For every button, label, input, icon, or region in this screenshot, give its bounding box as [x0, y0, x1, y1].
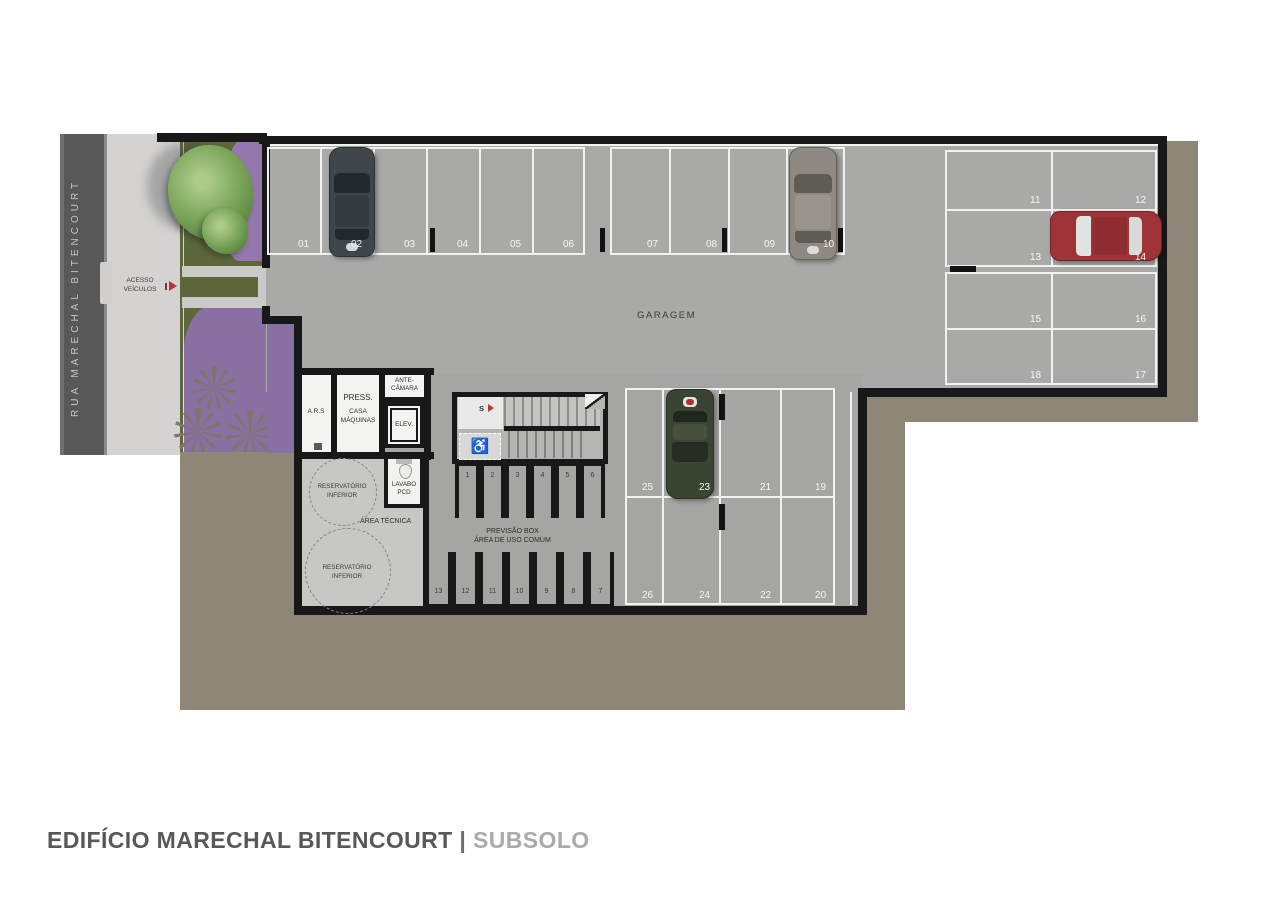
inner-top-white-line [266, 144, 1160, 146]
box-number: 4 [530, 472, 555, 479]
car-roof [1093, 217, 1127, 255]
stair-corner-diagonal [585, 394, 605, 409]
car-windshield [334, 173, 370, 193]
storage-box [452, 552, 479, 608]
space-number: 24 [699, 591, 710, 601]
space-divider [728, 147, 730, 255]
page-title: EDIFÍCIO MARECHAL BITENCOURT | SUBSOLO [47, 827, 590, 854]
box-number: 13 [425, 588, 452, 595]
reservoir-label-2: RESERVATÓRIO INFERIOR [306, 564, 388, 581]
space-divider [479, 147, 481, 255]
space-number: 12 [1135, 196, 1146, 206]
access-arrow-icon [169, 281, 177, 291]
space-number: 11 [1030, 196, 1040, 206]
storage-box [560, 552, 587, 608]
wall-right-block-bottom [858, 388, 1167, 397]
space-number: 01 [298, 240, 309, 250]
space-divider [426, 147, 428, 255]
room-lavabo-label2: PCD [384, 489, 424, 496]
car-license-plate [807, 246, 819, 254]
space-number: 09 [764, 240, 775, 250]
box-number: 3 [505, 472, 530, 479]
space-number: 04 [457, 240, 468, 250]
stairs-label: S [479, 404, 484, 413]
space-number: 13 [1030, 253, 1041, 263]
garage-label: GARAGEM [637, 310, 696, 321]
space-divider [945, 328, 1157, 330]
space-number: 06 [563, 240, 574, 250]
access-label-line2: VEÍCULOS [124, 286, 157, 293]
boxes-title-line1: PREVISÃO BOX [486, 528, 539, 535]
box-number: 1 [455, 472, 480, 479]
wall-rooms-top [294, 368, 434, 375]
car-roof [673, 424, 707, 440]
wall-mid-vertical [858, 388, 867, 615]
space-number: 03 [404, 240, 415, 250]
space-number: 08 [706, 240, 717, 250]
aisle-white-line [850, 392, 852, 605]
palm-tree-2 [174, 408, 222, 456]
car-rear-window [1129, 217, 1142, 255]
wall-top [157, 133, 267, 142]
room-lavabo-label1: LAVABO [384, 481, 424, 488]
boxes-title-line2: ÁREA DE USO COMUM [474, 537, 551, 544]
car-roof [335, 195, 369, 227]
column-tick [719, 394, 725, 420]
space-number: 16 [1135, 315, 1146, 325]
space-number: 02 [351, 240, 362, 250]
space-number: 20 [815, 591, 826, 601]
car-roof [795, 195, 831, 229]
box-number: 5 [555, 472, 580, 479]
space-number: 26 [642, 591, 653, 601]
boxes-area-label: PREVISÃO BOX ÁREA DE USO COMUM [450, 527, 575, 545]
space-divider [320, 147, 322, 255]
box-number: 7 [587, 588, 614, 595]
space-number: 18 [1030, 371, 1041, 381]
space-number: 19 [815, 483, 826, 493]
room-press-label1: PRESS. [337, 393, 379, 402]
room-ars-label: A.R.S [299, 408, 333, 415]
storage-box [580, 462, 605, 518]
car-rear-window [673, 411, 707, 422]
storage-box [455, 462, 480, 518]
elevator-label: ELEV. [384, 421, 424, 428]
column-tick [719, 504, 725, 530]
street-name-label: RUA MARECHAL BITENCOURT [70, 148, 96, 448]
space-divider [532, 147, 534, 255]
storage-box [555, 462, 580, 518]
space-number: 17 [1135, 371, 1146, 381]
car-plate-emblem [686, 399, 694, 405]
storage-box [530, 462, 555, 518]
storage-box [480, 462, 505, 518]
box-number: 6 [580, 472, 605, 479]
wall-right [1158, 136, 1167, 396]
reservoir-label-1: RESERVATÓRIO INFERIOR [303, 483, 381, 500]
title-floor: SUBSOLO [473, 827, 590, 853]
space-number: 25 [642, 483, 653, 493]
stairs-direction-arrow-icon [488, 404, 494, 412]
wall-rooms-right [424, 368, 431, 460]
title-pipe: | [459, 827, 466, 853]
column-tick [600, 228, 605, 252]
space-number: 10 [823, 240, 834, 250]
space-divider [625, 496, 835, 498]
car-windshield [794, 174, 832, 193]
room-press-label2: CASA [337, 408, 379, 415]
reservoir-2-line2: INFERIOR [332, 573, 362, 580]
room-press-label3: MÁQUINAS [335, 417, 381, 424]
box-number: 8 [560, 588, 587, 595]
area-tecnica-label: ÁREA TÉCNICA [360, 518, 411, 525]
driveway-median [182, 277, 258, 297]
space-number: 23 [699, 483, 710, 493]
space-divider [786, 147, 788, 255]
room-antecamara-label2: CÂMARA [385, 385, 424, 392]
wall-left-driveway-jamb [262, 306, 270, 324]
ars-equipment [314, 443, 322, 450]
column-tick [722, 228, 727, 252]
storage-box [587, 552, 614, 608]
box-number: 12 [452, 588, 479, 595]
room-antecamara-label1: ANTE- [385, 377, 424, 384]
column-tick [950, 266, 976, 272]
access-label: ACESSO VEÍCULOS [114, 277, 166, 294]
access-label-line1: ACESSO [126, 277, 153, 284]
title-building: EDIFÍCIO MARECHAL BITENCOURT [47, 827, 453, 853]
box-number: 11 [479, 588, 506, 595]
column-tick [430, 228, 435, 252]
floor-plan-canvas: RUA MARECHAL BITENCOURT ACESSO VEÍCULOS [0, 0, 1280, 905]
garden-purple-pocket [267, 322, 295, 453]
tree-small [202, 208, 248, 254]
stair-lower-flight [508, 431, 582, 458]
reservoir-2-line1: RESERVATÓRIO [323, 564, 372, 571]
storage-box [425, 552, 452, 608]
wall-top-main [259, 136, 1167, 144]
stair-landing [458, 397, 503, 429]
storage-box [533, 552, 560, 608]
wheelchair-icon: ♿ [459, 434, 501, 460]
box-number: 10 [506, 588, 533, 595]
car-windshield [672, 442, 708, 462]
space-number: 21 [760, 483, 771, 493]
space-divider [669, 147, 671, 255]
curb-notch [100, 262, 112, 304]
reservoir-1-line2: INFERIOR [327, 492, 357, 499]
space-number: 15 [1030, 315, 1041, 325]
access-arrow-tail [165, 283, 167, 290]
wall-left-lower [294, 316, 302, 615]
reservoir-1-line1: RESERVATÓRIO [318, 483, 367, 490]
box-number: 2 [480, 472, 505, 479]
space-number: 07 [647, 240, 658, 250]
storage-box [479, 552, 506, 608]
space-number: 14 [1135, 253, 1146, 263]
storage-box [505, 462, 530, 518]
palm-tree-1 [192, 366, 236, 410]
car-windshield [1076, 216, 1091, 256]
space-number: 05 [510, 240, 521, 250]
storage-box [506, 552, 533, 608]
space-number: 22 [760, 591, 771, 601]
column-tick [838, 228, 843, 252]
box-number: 9 [533, 588, 560, 595]
